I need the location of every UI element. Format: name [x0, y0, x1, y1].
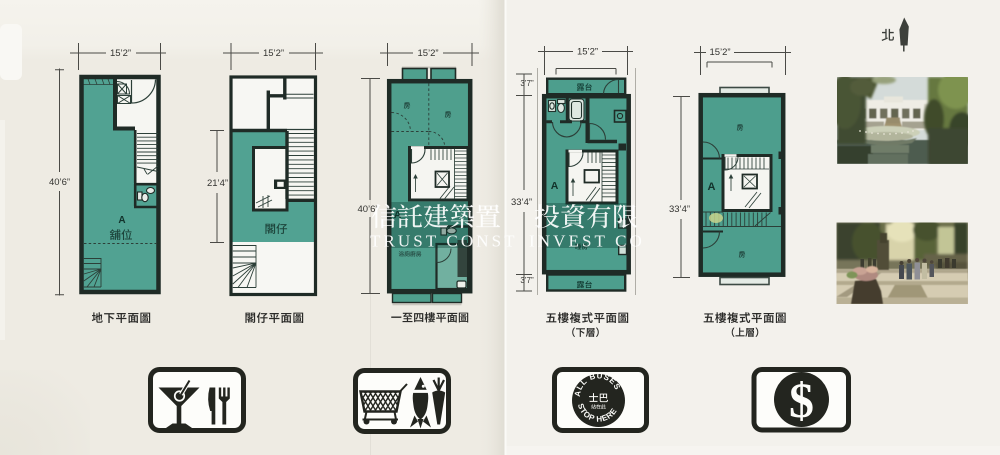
svg-text:15’2”: 15’2”	[417, 48, 438, 59]
svg-text:3’7”: 3’7”	[520, 276, 534, 285]
svg-text:15’2”: 15’2”	[577, 47, 598, 58]
svg-text:15’2”: 15’2”	[709, 47, 730, 58]
svg-text:33’4”: 33’4”	[511, 197, 532, 208]
svg-text:A: A	[708, 181, 716, 193]
svg-text:A: A	[118, 215, 125, 226]
svg-text:40’6”: 40’6”	[49, 177, 70, 188]
svg-text:21’4”: 21’4”	[207, 178, 228, 189]
svg-text:15’2”: 15’2”	[263, 48, 284, 59]
svg-text:$: $	[789, 372, 814, 428]
svg-text:INVEST CO: INVEST CO	[529, 232, 645, 251]
svg-text:TRUST CONST: TRUST CONST	[370, 232, 518, 251]
svg-text:33’4”: 33’4”	[669, 204, 690, 215]
svg-text:15’2”: 15’2”	[110, 48, 131, 59]
svg-text:3’7”: 3’7”	[520, 79, 534, 88]
svg-text:A: A	[551, 180, 559, 192]
